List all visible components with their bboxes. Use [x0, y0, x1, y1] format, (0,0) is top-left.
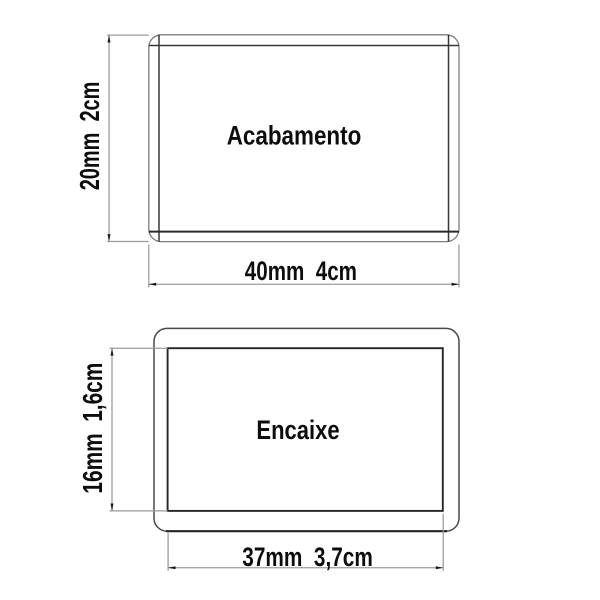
- svg-text:Acabamento: Acabamento: [227, 121, 362, 151]
- svg-text:37mm 3,7cm: 37mm 3,7cm: [242, 542, 372, 572]
- svg-text:Encaixe: Encaixe: [256, 415, 339, 445]
- svg-text:40mm 4cm: 40mm 4cm: [245, 256, 357, 286]
- svg-text:16mm 1,6cm: 16mm 1,6cm: [77, 363, 108, 494]
- svg-text:20mm 2cm: 20mm 2cm: [74, 82, 105, 191]
